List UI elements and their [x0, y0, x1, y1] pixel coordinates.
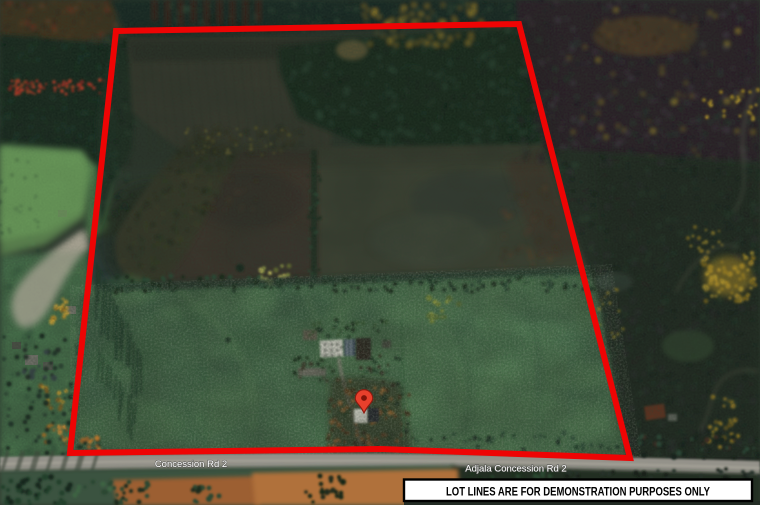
svg-text:Adjala Concession Rd 2: Adjala Concession Rd 2 — [465, 464, 566, 475]
svg-text:Concession Rd 2: Concession Rd 2 — [155, 459, 227, 470]
svg-text:LOT LINES ARE FOR DEMONSTRATIO: LOT LINES ARE FOR DEMONSTRATION PURPOSES… — [446, 485, 710, 499]
